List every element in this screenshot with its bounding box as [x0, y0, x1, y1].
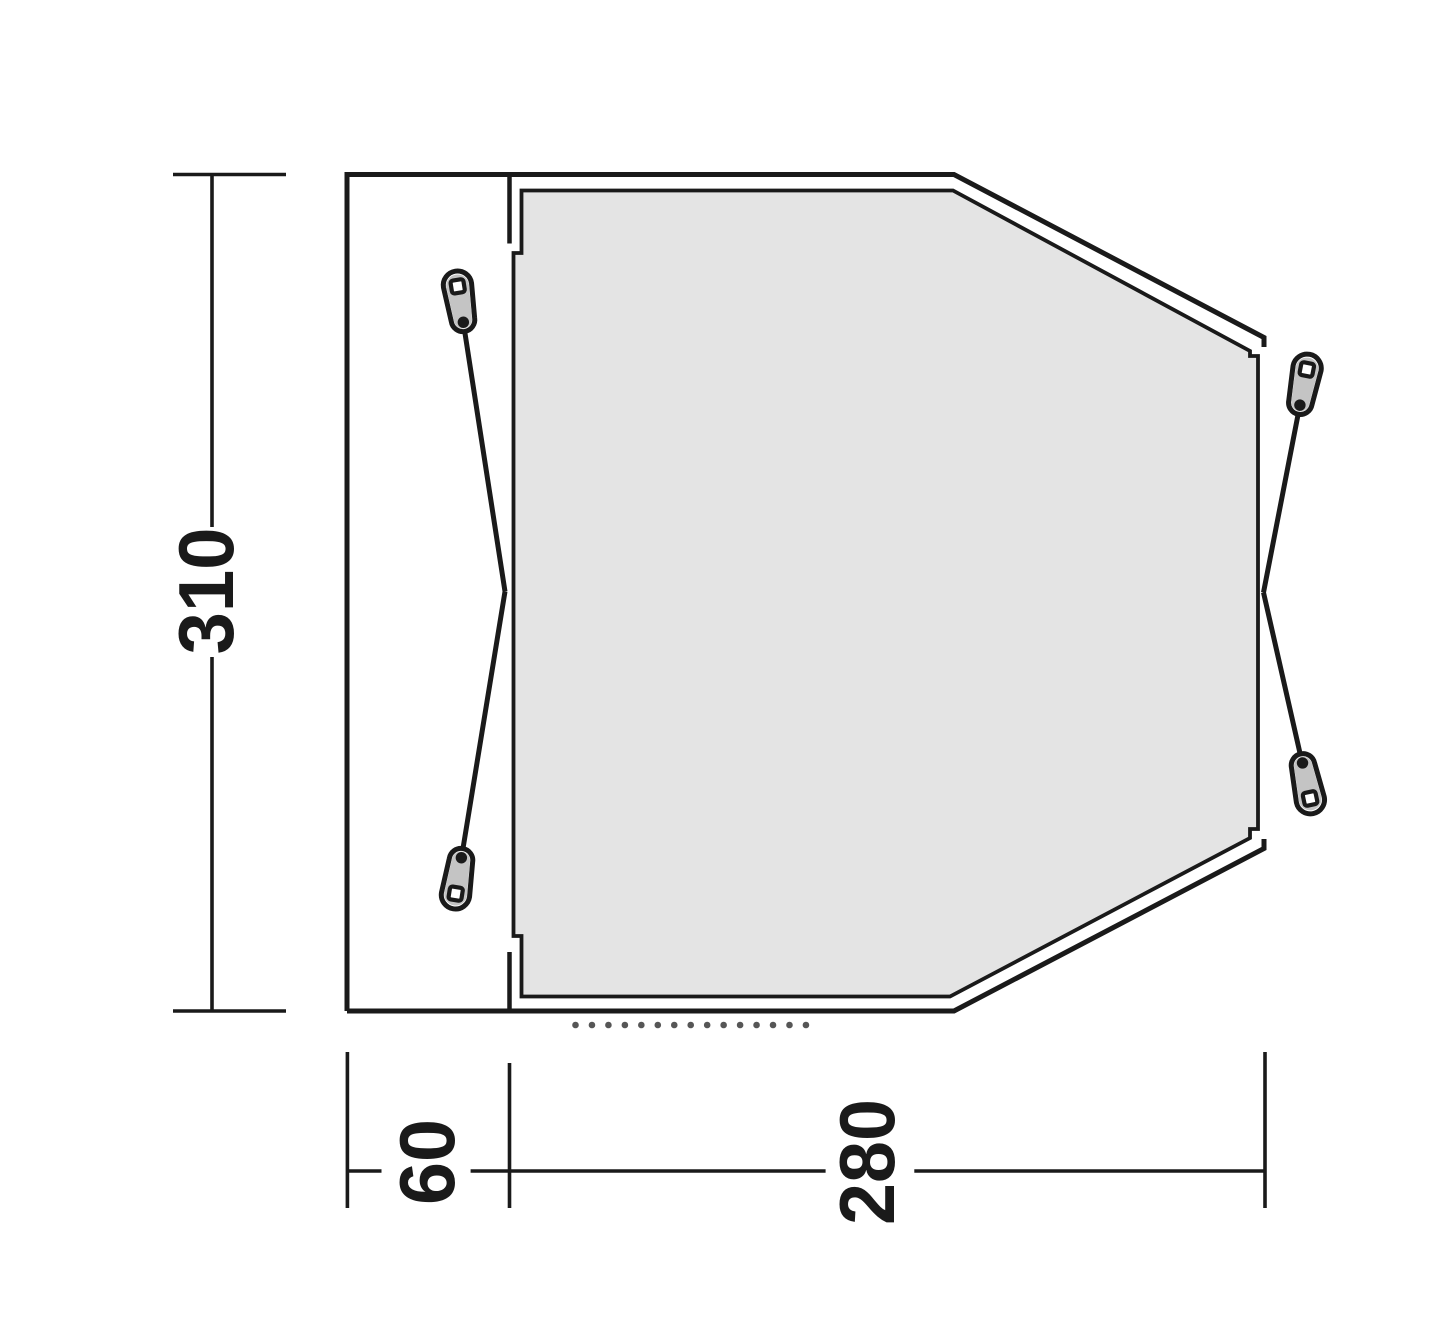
svg-text:310: 310 — [162, 528, 250, 655]
svg-text:280: 280 — [823, 1099, 911, 1225]
svg-text:60: 60 — [383, 1119, 471, 1205]
